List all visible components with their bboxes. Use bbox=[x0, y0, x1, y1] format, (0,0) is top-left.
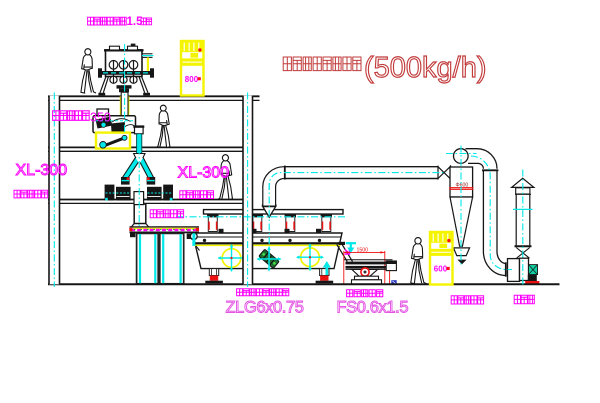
svg-text:XL-300: XL-300 bbox=[178, 164, 230, 181]
svg-text:ZLG6x0.75: ZLG6x0.75 bbox=[226, 299, 304, 317]
svg-text:FS0.6x1.5: FS0.6x1.5 bbox=[337, 299, 409, 317]
svg-text:800: 800 bbox=[185, 75, 199, 84]
svg-text:(500kg/h): (500kg/h) bbox=[364, 52, 487, 84]
svg-text:350: 350 bbox=[90, 111, 111, 125]
svg-text:XL-300: XL-300 bbox=[16, 162, 68, 179]
svg-text:1500: 1500 bbox=[357, 248, 369, 254]
svg-text:600: 600 bbox=[434, 265, 448, 274]
svg-text:Φ600: Φ600 bbox=[456, 182, 469, 188]
